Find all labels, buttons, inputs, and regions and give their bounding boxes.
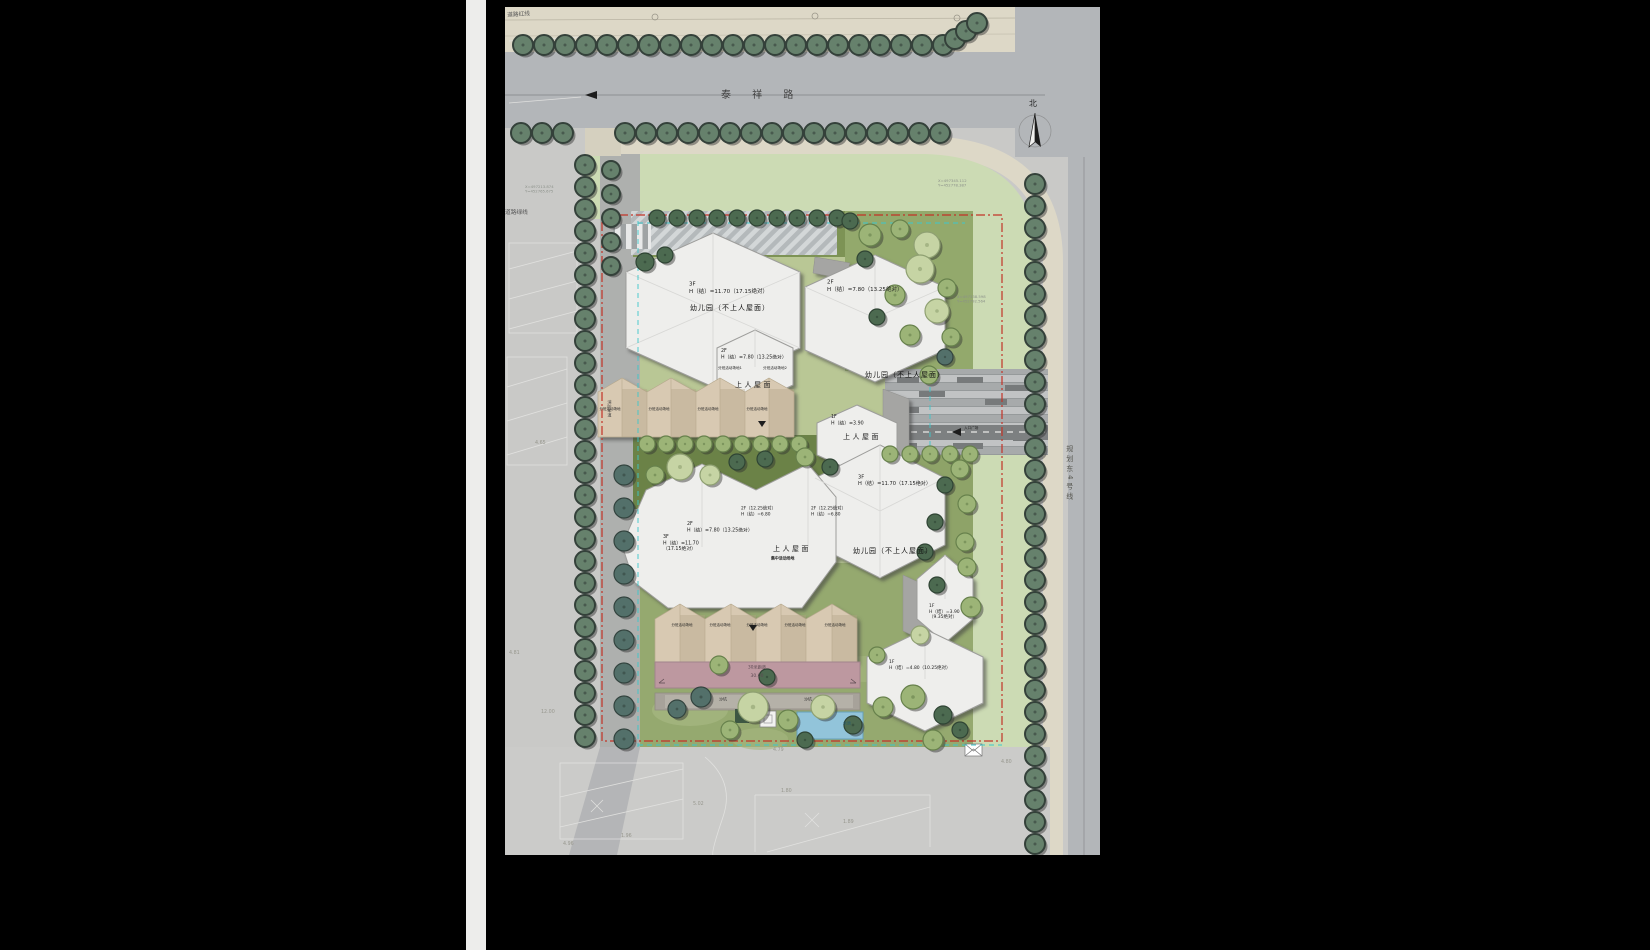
building-i-label: 1FH（结）=3.90（9.35绝对）	[929, 603, 960, 620]
spot-elevation: 4.80	[1001, 759, 1012, 765]
marker-icon	[965, 744, 982, 756]
building-d-label: 1FH（结）=3.90	[831, 414, 864, 426]
track-label: 30米跑道	[748, 665, 766, 670]
roof-f-label: 上人屋面	[773, 545, 811, 554]
site-plan-sheet: 泰 祥 路 北 道路红线 道路绿线 规划东4号线 X=497213.874Y=4…	[505, 7, 1100, 855]
coordinate-marker: X=497345.112Y=452778.387	[938, 179, 967, 188]
spot-elevation: 4.81	[509, 650, 520, 656]
building-e-name: 幼儿园（不上人屋面）	[853, 547, 933, 556]
building-b-name: 幼儿园（不上人屋面）	[865, 371, 945, 380]
road-greenline-label: 道路绿线	[505, 209, 528, 216]
spot-elevation: 4.65	[535, 440, 546, 446]
building-c-sub2: 分班活动场地2	[763, 366, 787, 371]
class-ground-label: 分班活动场地	[747, 623, 768, 627]
road-label-taixiang: 泰 祥 路	[721, 90, 802, 103]
building-j-label: 1FH（结）=4.80（10.25绝对）	[889, 659, 951, 670]
road-label-east4: 规划东4号线	[1065, 445, 1074, 502]
screenshot-canvas: 泰 祥 路 北 道路红线 道路绿线 规划东4号线 X=497213.874Y=4…	[0, 0, 1650, 950]
class-ground-label: 分班活动场地	[825, 623, 846, 627]
paper-edge-strip	[466, 0, 486, 950]
class-ground-label: 分班活动场地	[747, 407, 768, 411]
building-c-sub1: 分班活动场地1	[718, 366, 742, 371]
spot-elevation: 1.89	[843, 819, 854, 825]
building-a-name: 幼儿园（不上人屋面）	[690, 304, 770, 313]
building-c-roof-label: 上人屋面	[735, 381, 773, 390]
spot-elevation: 1.96	[621, 833, 632, 839]
class-ground-label: 分班活动场地	[698, 407, 719, 411]
building-f2-label: 2F（12.25绝对）H（结）=6.80	[811, 506, 846, 517]
spot-elevation: 4.96	[563, 841, 574, 847]
site-plan-drawing	[505, 7, 1100, 855]
building-c-label: 2FH（结）=7.80（13.25绝对）	[721, 348, 787, 360]
sand-label: 沙坑	[804, 697, 812, 702]
entry-label: 入口广场	[964, 426, 978, 431]
spot-elevation: 1.80	[781, 788, 792, 794]
building-f1-label: 2F（12.25绝对）H（结）=6.80	[741, 506, 776, 517]
spot-elevation: 5.02	[693, 801, 704, 807]
class-ground-label: 分班活动场地	[649, 407, 670, 411]
east-entrance-paving	[885, 369, 1048, 455]
class-ground-label: 分班活动场地	[785, 623, 806, 627]
building-d-roof-label: 上人屋面	[843, 433, 881, 442]
building-g-label: 2FH（结）=7.80（13.25绝对）	[687, 521, 753, 533]
building-e-label: 3FH（结）=11.70（17.15绝对）	[858, 474, 931, 487]
coordinate-marker: X=497213.874Y=452765.675	[525, 185, 554, 194]
coordinate-marker: X=497338.598Y=452792.564	[957, 295, 986, 304]
spot-elevation: 4.79	[773, 747, 784, 753]
roof-f-sub-label: 集中活动场地	[771, 556, 794, 561]
north-label: 北	[1029, 99, 1037, 109]
building-a-label: 3FH（结）=11.70（17.15绝对）	[689, 281, 768, 295]
fire-lane-label: 消防车道	[606, 400, 611, 417]
spot-elevation: 12.00	[541, 709, 555, 715]
class-ground-label: 分班活动场地	[672, 623, 693, 627]
pool-label: 水池	[843, 721, 851, 726]
building-h-label: 3FH（结）=11.70（17.15绝对）	[663, 534, 699, 552]
building-b-label: 2FH（结）=7.80（13.25绝对）	[827, 279, 903, 293]
class-ground-label: 分班活动场地	[710, 623, 731, 627]
sand-label: 沙坑	[719, 697, 727, 702]
track-dimension: 30.00	[751, 673, 764, 679]
